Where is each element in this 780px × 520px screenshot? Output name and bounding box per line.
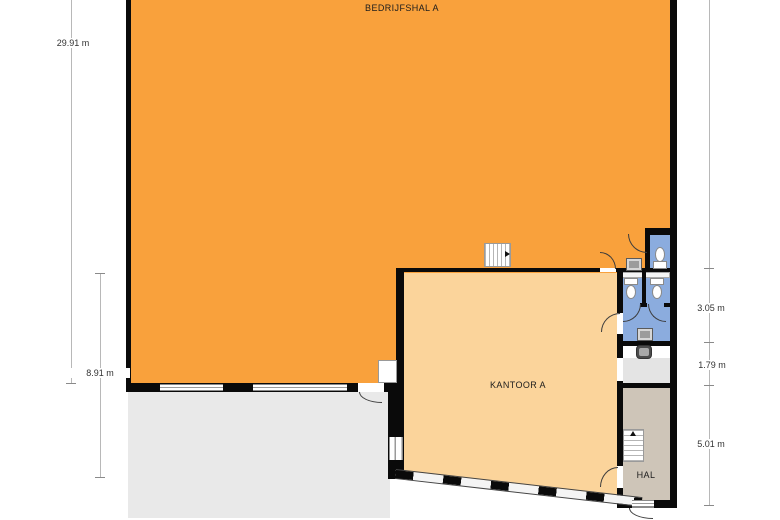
dimension-tick xyxy=(704,268,714,269)
sink-icon xyxy=(637,328,653,341)
hallway-room-label: HAL xyxy=(621,470,671,480)
door-gap-entrance xyxy=(632,500,654,508)
door-arc-icon xyxy=(629,508,653,519)
door-leaf xyxy=(378,360,397,383)
stairs-arrow-icon xyxy=(505,251,510,257)
outside-area xyxy=(128,392,390,518)
dimension-tick xyxy=(66,383,76,384)
dimension-tick xyxy=(95,477,105,478)
dimension-line xyxy=(71,0,72,384)
dimension-label-left-outer: 29.91 m xyxy=(41,38,105,48)
wall-toilet1-north xyxy=(645,228,677,235)
wall-hall-west xyxy=(126,0,131,392)
wall-toilet-divider xyxy=(642,272,646,303)
dimension-label-right-top: 3.05 m xyxy=(681,303,741,313)
dimension-tick xyxy=(704,505,714,506)
sink-icon xyxy=(626,258,642,271)
stairs-arrow-icon xyxy=(630,431,636,436)
toilet-icon xyxy=(653,261,667,269)
wall-washroom-north-stub1 xyxy=(640,303,647,307)
dimension-tick xyxy=(704,385,714,386)
toilet-icon xyxy=(655,247,665,262)
toilet-icon xyxy=(624,278,638,285)
hall-room-label: BEDRIJFSHAL A xyxy=(342,3,462,13)
dimension-label-left-inner: 8.91 m xyxy=(70,368,130,378)
door-gap-pantry xyxy=(617,358,623,381)
window xyxy=(160,384,223,391)
dimension-tick xyxy=(704,342,714,343)
wall-office-west-outer xyxy=(388,383,404,479)
toilet-icon xyxy=(650,278,664,285)
dimension-label-right-bottom: 5.01 m xyxy=(681,439,741,449)
dimension-label-right-middle: 1.79 m xyxy=(682,360,742,370)
dimension-line xyxy=(709,0,710,506)
wall-office-west-inner xyxy=(396,268,404,383)
window xyxy=(389,437,403,460)
toilet-icon xyxy=(652,285,662,299)
floor-plan: 29.91 m 8.91 m 3.05 m 1.79 m 5.01 m BEDR… xyxy=(0,0,780,520)
wall-hallway-north xyxy=(617,383,677,388)
door-gap-hall-exterior xyxy=(358,383,384,392)
dimension-tick xyxy=(95,273,105,274)
office-room-label: KANTOOR A xyxy=(468,380,568,390)
toilet-icon xyxy=(626,285,636,299)
window xyxy=(253,384,347,391)
wall-east xyxy=(670,0,677,508)
sink-icon xyxy=(636,345,652,359)
